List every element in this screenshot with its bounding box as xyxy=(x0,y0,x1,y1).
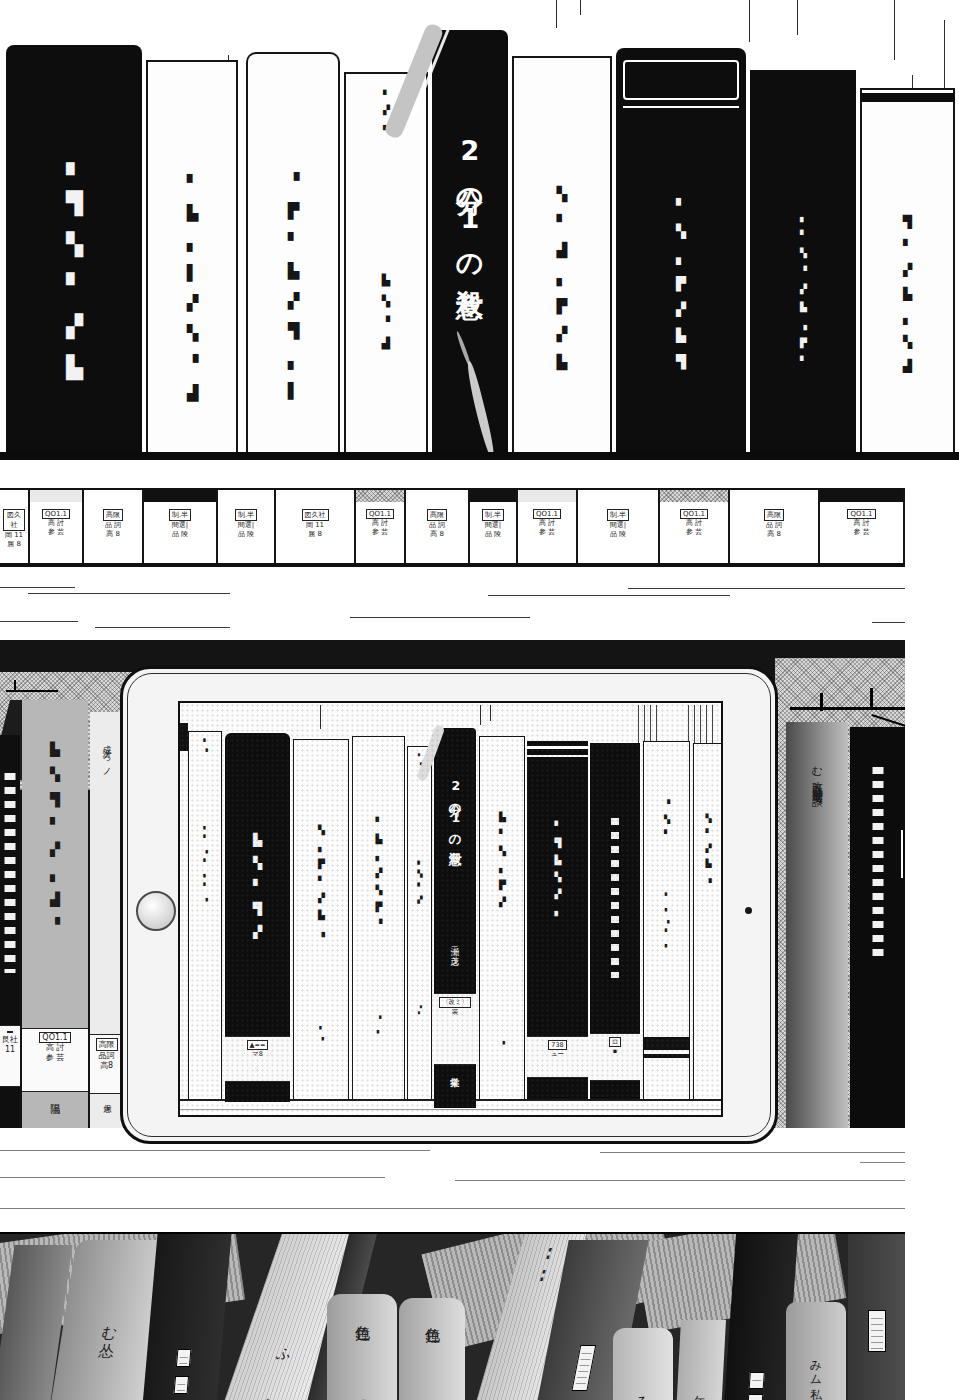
book-edge-highlight xyxy=(901,830,903,878)
call-number-line: 参 芸 xyxy=(22,1053,88,1063)
call-number-box: 制.半 xyxy=(482,509,504,521)
top-bookshelf-panel: ▖▜▚▘▞▙▘▙▖▌▞▚▝▟▝▛▘▙▞▜▖▌▘▞▖▙▚▝▟2分の1の殺意▚▘▟▖… xyxy=(0,0,959,460)
call-number-label: QO1.1高 討参 芸 xyxy=(823,506,900,537)
labeled-book-spine: 高限品 詞高 8 xyxy=(84,490,144,563)
halftone-overlay xyxy=(180,703,721,1115)
call-number-label: 高限品 詞高 8 xyxy=(87,506,139,539)
label-lines xyxy=(575,1348,593,1388)
camera-dot-icon xyxy=(745,907,752,914)
call-number-label: 制.半間選|品 陵 xyxy=(147,506,213,539)
call-number-label: QO1.1高 討参 芸 xyxy=(663,506,725,537)
label-lines xyxy=(752,1375,762,1386)
spine-top-edge xyxy=(406,490,468,502)
spine-top-edge xyxy=(578,490,658,502)
speed-line xyxy=(628,588,905,589)
call-number-label: QO1.1高 討参 芸 xyxy=(521,506,573,537)
call-number-label: 図久社岡 11届 8 xyxy=(279,506,351,539)
book-spine: みム私 xyxy=(786,1302,846,1400)
labeled-book-spine: 制.半間選|品 陵 xyxy=(578,490,660,563)
spine-scribble-text: ▖▘▖▘ xyxy=(537,1244,556,1288)
labeled-book-spine: QO1.1高 討参 芸 xyxy=(518,490,578,563)
call-number-line: 品 陵 xyxy=(581,530,655,539)
speed-line xyxy=(797,0,798,35)
call-number-line: 参 芸 xyxy=(823,528,900,537)
cover-streak xyxy=(464,360,497,459)
labeled-book-spine: 高限品 詞高 8 xyxy=(406,490,470,563)
book-spine: 2分の1の殺意 xyxy=(432,30,508,452)
call-number-box: 制.半 xyxy=(607,509,629,521)
call-number-line: 11 xyxy=(0,1045,20,1055)
call-number-line: 高8 xyxy=(90,1061,123,1071)
call-number-box: 高限 xyxy=(103,509,123,521)
call-number-line: 艮社 xyxy=(0,1035,20,1045)
spine-scribble-text: ろ xyxy=(636,1386,650,1400)
spine-label xyxy=(747,1394,763,1400)
call-number-line: 岡 11 xyxy=(3,531,25,540)
call-number-box xyxy=(7,1031,13,1033)
speed-line xyxy=(350,617,530,618)
book-spine: ▜▘▞▙▖▚▟ xyxy=(860,88,955,452)
spine-label xyxy=(749,1372,765,1389)
call-number-line: 品詞 xyxy=(90,1051,123,1061)
call-number-line: 高 討 xyxy=(823,519,900,528)
call-number-box: QO1.1 xyxy=(39,1032,70,1043)
call-number-label: QO1.1高 討参 芸 xyxy=(22,1028,88,1092)
call-number-line: 間選| xyxy=(147,521,213,530)
call-number-line: 間選| xyxy=(221,521,271,530)
call-number-label: 高限品 詞高 8 xyxy=(409,506,465,539)
speed-line xyxy=(28,593,230,594)
spine-top-edge xyxy=(518,490,576,502)
speed-line xyxy=(0,1150,430,1151)
book-spine: ▝▛▘▙▞▜▖▌ xyxy=(246,52,340,452)
spine-top-edge xyxy=(84,490,142,502)
speed-line xyxy=(860,1162,905,1163)
bracket-post xyxy=(14,680,16,692)
spine-top-edge xyxy=(470,490,516,502)
spine-scribble-text: ▙▚▝▟ xyxy=(381,274,392,358)
spine-top-edge xyxy=(356,490,404,502)
call-number-line: 高 討 xyxy=(663,519,725,528)
call-number-label: 艮社11 xyxy=(0,1025,20,1087)
spine-scribble-text: ▖▜▚▘▞▙ xyxy=(63,150,85,396)
call-number-line: 高 討 xyxy=(33,519,79,528)
call-number-line: 参 芸 xyxy=(663,528,725,537)
speed-line xyxy=(95,627,230,628)
call-number-label: QO1.1高 討参 芸 xyxy=(33,506,79,537)
spine-scribble-text: ▝▛▘▙▞▜▖▌ xyxy=(286,172,301,412)
spine-scribble-text: ケ xyxy=(693,1386,707,1400)
spine-top-edge xyxy=(144,490,216,502)
call-number-box: QO1.1 xyxy=(847,509,875,519)
call-number-box: 図久社 xyxy=(302,509,329,521)
spine-scribble-text: ▖▘▚▝▞▙▗▛▘ xyxy=(799,212,808,374)
spine-top-edge xyxy=(820,490,903,502)
call-number-label: 制.半間選|品 陵 xyxy=(581,506,655,539)
speed-line xyxy=(600,1152,905,1153)
featured-title: 2分の1の殺意 xyxy=(457,135,484,273)
spine-top-edge xyxy=(660,490,728,502)
bracket-post xyxy=(820,693,823,711)
book-spine: ▚▘▟▖▛▞▙ xyxy=(512,56,612,452)
spine-scribble-text: ▘▙▖▌▞▚▝▟ xyxy=(185,174,200,414)
call-number-label: 制.半間選|品 陵 xyxy=(221,506,271,539)
spine-block-column xyxy=(872,767,883,962)
bracket-post xyxy=(870,688,873,710)
home-button-icon xyxy=(136,891,176,931)
speed-line xyxy=(580,0,581,15)
call-number-line: 品 陵 xyxy=(147,530,213,539)
call-number-box: QO1.1 xyxy=(533,509,561,519)
spine-scribble-text: ▙▚▜▘▞▖▟▝ xyxy=(49,742,62,942)
book-spine: 高限品詞高8志保成冴ろノ xyxy=(90,712,123,1128)
call-number-label: QO1.1高 討参 芸 xyxy=(359,506,401,537)
tablet-screen: ▘▝▖▘▗▘▖▘▗▲==マ8▙▚▘▜▞▘▚▖▛▘▞▙▗▖▗▘▙▖▞▚▛▝▝▖▘▝… xyxy=(178,701,723,1117)
labeled-book-spine: QO1.1高 討参 芸 xyxy=(30,490,84,563)
book-spine: ▖▘▚▝▞▙▗▛▘ xyxy=(750,70,856,452)
call-number-line: 参 芸 xyxy=(359,528,401,537)
book-spine xyxy=(850,727,905,1128)
speed-line xyxy=(749,0,750,42)
speed-line xyxy=(0,1208,905,1209)
spine-scribble-text: ふ xyxy=(277,1339,297,1355)
spine-top-band xyxy=(860,93,955,102)
book-spine: ケ xyxy=(675,1320,726,1400)
call-number-line: 品 陵 xyxy=(221,530,271,539)
speed-line xyxy=(872,622,905,623)
bottom-bookshelf-panel: む怂伐ふ参色鐘伐色鐘空▖▘▖▘ろケみム私 xyxy=(0,1232,905,1400)
book-spine: ▘▚▖▛▞▙▜ xyxy=(616,48,746,452)
spine-scribble-text: ▚▘▟▖▛▞▙ xyxy=(555,186,569,382)
speed-line xyxy=(0,1177,385,1178)
page-margin xyxy=(905,460,959,1400)
spine-scribble-text: ▜▘▞▙▖▚▟ xyxy=(902,215,914,383)
call-number-line: 高 討 xyxy=(22,1043,88,1053)
bracket-line xyxy=(790,707,905,710)
labeled-book-spine: QO1.1高 討参 芸 xyxy=(820,490,905,563)
call-number-line: 高 8 xyxy=(87,530,139,539)
speed-line xyxy=(455,1180,905,1181)
call-number-line: 品 詞 xyxy=(87,521,139,530)
spine-top-edge xyxy=(218,490,274,502)
spine-scribble-text: む改既助色助返笑談 xyxy=(812,758,823,789)
labeled-spine-row: 図久社岡 11届 8QO1.1高 討参 芸高限品 詞高 8制.半間選|品 陵制.… xyxy=(0,488,905,567)
spine-scribble-text: む怂 xyxy=(102,1315,120,1332)
spine-scribble-text: 成冴ろノ xyxy=(102,738,111,775)
call-number-line: 高 討 xyxy=(359,519,401,528)
book-spine: む改既助色助返笑談 xyxy=(786,722,848,1128)
call-number-box: 制.半 xyxy=(235,509,257,521)
book-spine: 色鐘空 xyxy=(399,1298,465,1400)
manga-page: ▖▜▚▘▞▙▘▙▖▌▞▚▝▟▝▛▘▙▞▜▖▌▘▞▖▙▚▝▟2分の1の殺意▚▘▟▖… xyxy=(0,0,959,1400)
speed-line xyxy=(0,621,78,622)
labeled-book-spine: 図久社岡 11届 8 xyxy=(276,490,356,563)
call-number-line: 届 8 xyxy=(279,530,351,539)
book-spine xyxy=(848,1234,905,1400)
spine-label xyxy=(173,1376,189,1394)
label-lines xyxy=(871,1313,883,1349)
speed-line xyxy=(488,595,730,596)
label-lines xyxy=(177,1379,186,1391)
labeled-book-spine: 高限品 詞高 8 xyxy=(730,490,820,563)
shelf-base xyxy=(0,452,959,460)
call-number-label: 図久社岡 11届 8 xyxy=(3,506,25,549)
call-number-box: QO1.1 xyxy=(680,509,708,519)
call-number-label: 高限品詞高8 xyxy=(90,1034,123,1094)
spine-label xyxy=(868,1310,886,1352)
call-number-box: 高限 xyxy=(96,1038,118,1051)
spine-top-edge xyxy=(730,490,818,502)
spine-title-frame xyxy=(623,60,739,100)
labeled-book-spine: QO1.1高 討参 芸 xyxy=(660,490,730,563)
call-number-box: 高限 xyxy=(427,509,447,521)
speed-line xyxy=(0,587,75,588)
labeled-book-spine: QO1.1高 討参 芸 xyxy=(356,490,406,563)
labeled-book-spine: 図久社岡 11届 8 xyxy=(0,490,30,563)
spine-title-frame-line xyxy=(623,106,739,108)
call-number-line: 参 芸 xyxy=(521,528,573,537)
call-number-line: 品 陵 xyxy=(473,530,513,539)
book-spine: ▘▙▖▌▞▚▝▟ xyxy=(146,60,238,452)
call-number-box: 図久社 xyxy=(3,509,25,531)
book-spine: QO1.1高 討参 芸温陽▙▚▜▘▞▖▟▝ xyxy=(22,700,88,1128)
spine-scribble-text: みム私 xyxy=(810,1352,822,1379)
call-number-box: QO1.1 xyxy=(42,509,70,519)
book-spine: ろ xyxy=(613,1328,673,1400)
call-number-box: 制.半 xyxy=(169,509,191,521)
call-number-line: 間選| xyxy=(581,521,655,530)
call-number-line: 品 詞 xyxy=(409,521,465,530)
call-number-line: 岡 11 xyxy=(279,521,351,530)
spine-label xyxy=(176,1349,192,1367)
call-number-box: QO1.1 xyxy=(366,509,394,519)
spine-scribble-text: ▘▚▖▛▞▙▜ xyxy=(675,198,688,380)
call-number-line: 高 討 xyxy=(521,519,573,528)
call-number-line: 品 詞 xyxy=(733,521,815,530)
cover-streak xyxy=(456,331,473,370)
speed-line xyxy=(556,0,557,28)
speed-line xyxy=(894,0,895,60)
call-number-label: 制.半間選|品 陵 xyxy=(473,506,513,539)
labeled-book-spine: 制.半間選|品 陵 xyxy=(218,490,276,563)
call-number-box: 高限 xyxy=(764,509,784,521)
book-spine: 色鐘伐 xyxy=(327,1294,397,1400)
call-number-line: 間選| xyxy=(473,521,513,530)
spine-block-column xyxy=(5,773,16,973)
tablet-device: ▘▝▖▘▗▘▖▘▗▲==マ8▙▚▘▜▞▘▚▖▛▘▞▙▗▖▗▘▙▖▞▚▛▝▝▖▘▝… xyxy=(120,666,778,1144)
call-number-line: 高 8 xyxy=(409,530,465,539)
book-spine: ▖▜▚▘▞▙ xyxy=(6,45,142,452)
call-number-line: 高 8 xyxy=(733,530,815,539)
labeled-book-spine: 制.半間選|品 陵 xyxy=(470,490,518,563)
book-spine: 艮社11 xyxy=(0,735,20,1128)
labeled-book-spine: 制.半間選|品 陵 xyxy=(144,490,218,563)
spine-top-edge xyxy=(276,490,354,502)
call-number-label: 高限品 詞高 8 xyxy=(733,506,815,539)
spine-top-edge xyxy=(0,490,28,502)
call-number-line: 参 芸 xyxy=(33,528,79,537)
spine-label xyxy=(571,1345,596,1391)
call-number-line: 届 8 xyxy=(3,540,25,549)
label-lines xyxy=(179,1352,188,1364)
spine-top-edge xyxy=(30,490,82,502)
